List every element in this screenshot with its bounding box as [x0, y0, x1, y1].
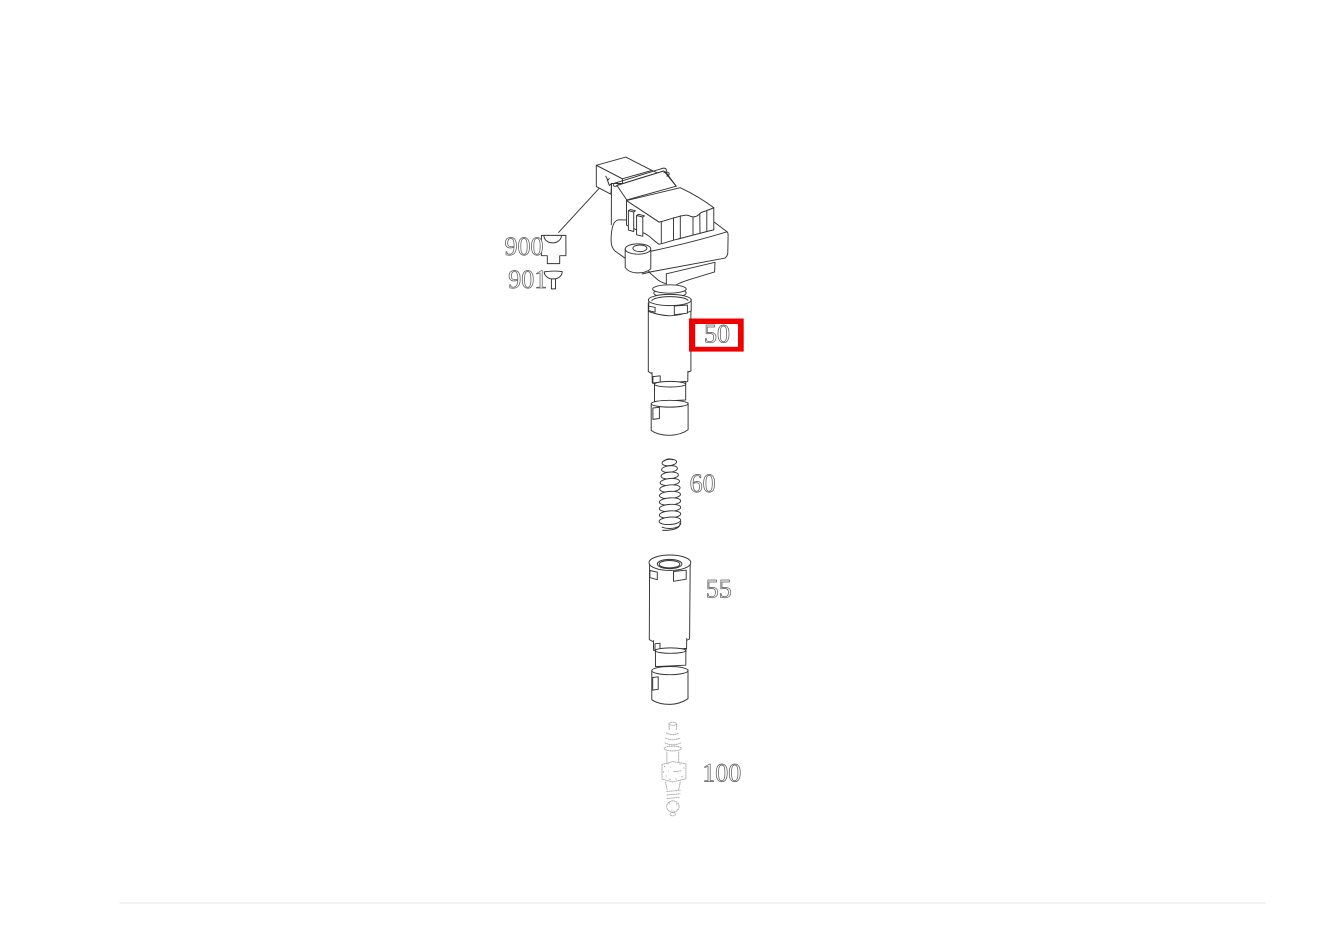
svg-text:100: 100 — [702, 759, 741, 788]
svg-text:900: 900 — [505, 232, 544, 261]
svg-text:901: 901 — [508, 265, 547, 294]
svg-text:55: 55 — [706, 575, 732, 604]
svg-text:50: 50 — [704, 319, 730, 348]
svg-text:60: 60 — [690, 469, 716, 498]
